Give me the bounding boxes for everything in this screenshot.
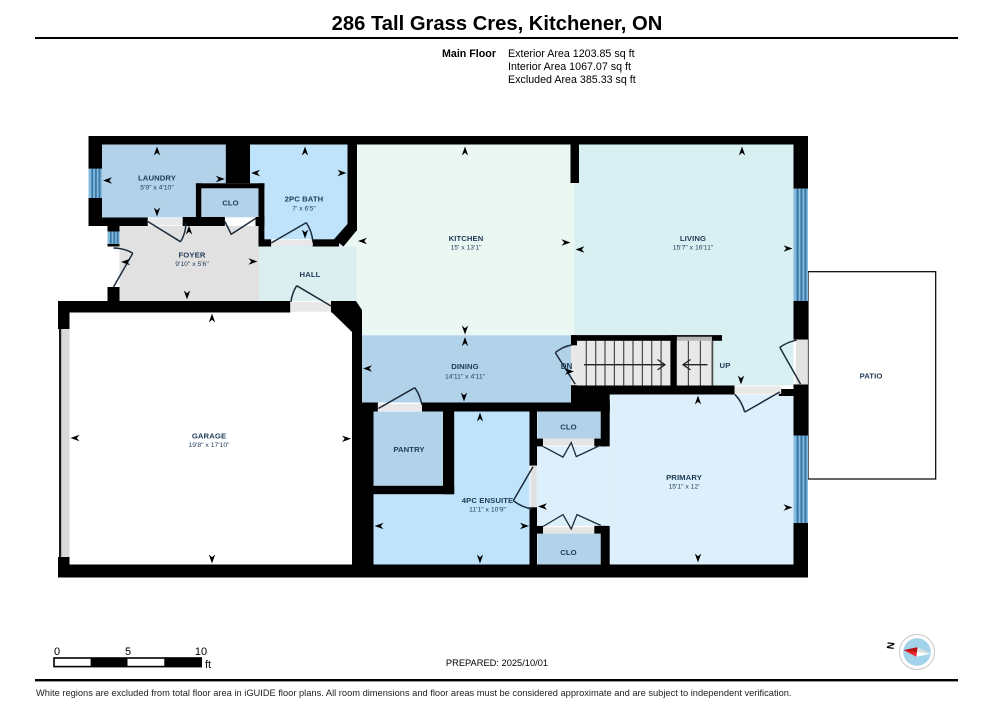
svg-text:CLO: CLO <box>560 423 577 432</box>
svg-text:ft: ft <box>205 659 211 671</box>
svg-text:286 Tall Grass Cres, Kitchener: 286 Tall Grass Cres, Kitchener, ON <box>332 13 663 35</box>
svg-text:10: 10 <box>195 646 207 658</box>
svg-text:FOYER: FOYER <box>179 251 206 260</box>
svg-text:15' x 13'1": 15' x 13'1" <box>450 245 482 252</box>
svg-text:5'9" x 4'10": 5'9" x 4'10" <box>140 184 174 191</box>
svg-text:Excluded Area 385.33 sq ft: Excluded Area 385.33 sq ft <box>508 74 636 86</box>
svg-text:15'1" x 12': 15'1" x 12' <box>668 484 699 491</box>
svg-text:5: 5 <box>125 646 131 658</box>
svg-text:Interior Area 1067.07 sq ft: Interior Area 1067.07 sq ft <box>508 61 631 73</box>
svg-text:LIVING: LIVING <box>680 234 706 243</box>
svg-text:PANTRY: PANTRY <box>393 445 424 454</box>
svg-text:15'7" x 16'11": 15'7" x 16'11" <box>673 245 714 252</box>
svg-text:0: 0 <box>54 646 60 658</box>
svg-text:CLO: CLO <box>222 199 239 208</box>
svg-text:GARAGE: GARAGE <box>192 432 226 441</box>
svg-text:19'8" x 17'10": 19'8" x 17'10" <box>188 442 230 449</box>
svg-text:HALL: HALL <box>300 270 321 279</box>
svg-text:11'1" x 10'9": 11'1" x 10'9" <box>469 507 506 514</box>
svg-text:KITCHEN: KITCHEN <box>449 234 484 243</box>
svg-text:2PC BATH: 2PC BATH <box>285 195 324 204</box>
svg-text:Main Floor: Main Floor <box>442 48 496 60</box>
svg-text:4PC ENSUITE: 4PC ENSUITE <box>462 496 514 505</box>
svg-text:UP: UP <box>720 361 731 370</box>
svg-text:7' x 6'5": 7' x 6'5" <box>292 206 316 213</box>
svg-text:PREPARED: 2025/10/01: PREPARED: 2025/10/01 <box>446 658 548 668</box>
svg-text:CLO: CLO <box>560 548 577 557</box>
svg-text:LAUNDRY: LAUNDRY <box>138 174 176 183</box>
svg-text:PATIO: PATIO <box>860 372 883 381</box>
svg-text:PRIMARY: PRIMARY <box>666 473 702 482</box>
svg-text:White regions are excluded fro: White regions are excluded from total fl… <box>36 688 792 698</box>
svg-text:9'10" x 5'6": 9'10" x 5'6" <box>175 261 209 268</box>
svg-text:DINING: DINING <box>451 362 479 371</box>
svg-text:DN: DN <box>561 362 573 371</box>
svg-text:N: N <box>886 641 898 650</box>
svg-text:14'11" x 4'11": 14'11" x 4'11" <box>445 373 486 380</box>
svg-text:Exterior Area 1203.85 sq ft: Exterior Area 1203.85 sq ft <box>508 48 635 60</box>
